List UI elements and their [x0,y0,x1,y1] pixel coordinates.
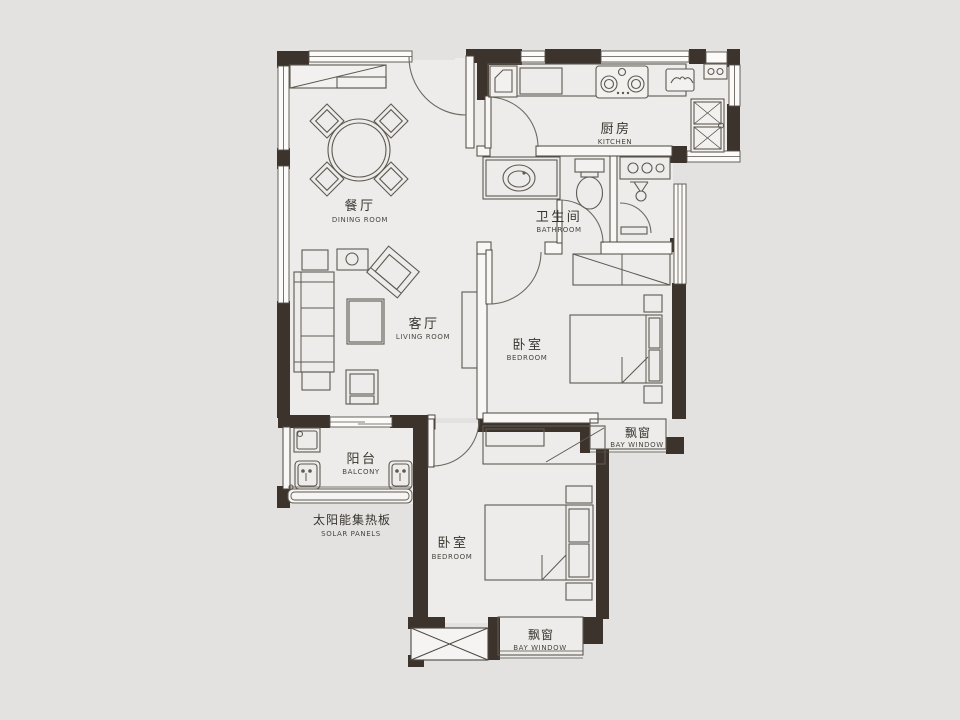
window-dining-north [309,51,412,62]
window-living-west [278,166,289,303]
duct-shaft-box [411,628,488,660]
balcony-sliding-door[interactable] [330,417,392,427]
solar-panels-label-zh: 太阳能集热板 [313,512,391,527]
fridge [490,66,517,97]
solar-panels-label-en: SOLAR PANELS [321,530,381,538]
bay-window-east-label-en: BAY WINDOW [610,441,664,449]
dining-room-label-en: DINING ROOM [332,216,388,224]
dining-room-label-zh: 餐厅 [344,198,375,214]
kitchen-wall-unit [704,64,727,79]
floorplan-canvas: 餐厅 DINING ROOM 厨房 KITCHEN 卫生间 BATHROOM 客… [0,0,960,720]
stove [596,66,648,98]
kitchen-label-en: KITCHEN [598,138,633,146]
window-kitchen-north-3 [706,52,727,63]
bathroom-label-en: BATHROOM [536,226,581,234]
window-kitchen-south-band [687,151,740,162]
bay-window-east-label-zh: 飘窗 [625,426,651,440]
window-bath-bedroom-east [674,184,686,284]
bedroom2-label-en: BEDROOM [432,553,473,561]
window-kitchen-north-2 [601,51,689,62]
balcony-label-zh: 阳台 [346,452,377,467]
bedroom2-label-zh: 卧室 [437,535,468,551]
window-kitchen-north-1 [521,51,545,62]
floorplan-drawing: 餐厅 DINING ROOM 厨房 KITCHEN 卫生间 BATHROOM 客… [0,0,960,720]
window-dining-west [278,66,289,150]
bedroom1-label-zh: 卧室 [512,337,543,353]
bay-window-south-label-zh: 飘窗 [528,628,554,642]
bedroom1-label-en: BEDROOM [507,354,548,362]
range-hood [666,69,694,91]
living-room-label-en: LIVING ROOM [396,333,450,341]
balcony-label-en: BALCONY [342,468,380,476]
bathroom-label-zh: 卫生间 [536,210,583,225]
kitchen-sink [691,99,724,152]
dining-cabinet [290,65,386,88]
kitchen-label-zh: 厨房 [600,121,631,137]
bay-window-south-label-en: BAY WINDOW [513,644,567,652]
living-room-label-zh: 客厅 [408,316,439,332]
window-kitchen-east [729,65,740,106]
